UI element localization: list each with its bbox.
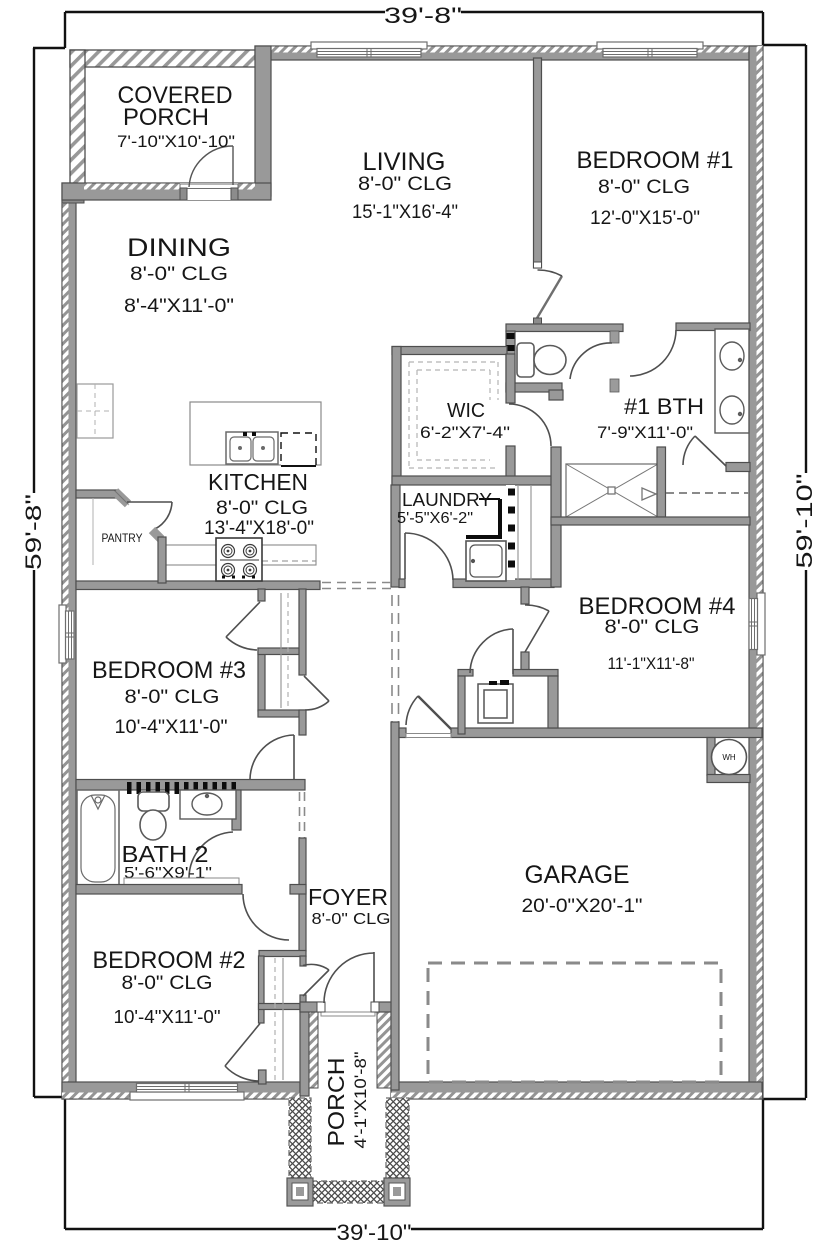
svg-text:LAUNDRY: LAUNDRY: [402, 490, 492, 510]
svg-text:8'-4"X11'-0": 8'-4"X11'-0": [124, 296, 234, 317]
svg-text:WIC: WIC: [447, 400, 485, 422]
svg-text:8'-0" CLG: 8'-0" CLG: [312, 911, 391, 928]
svg-text:BEDROOM #2: BEDROOM #2: [93, 947, 246, 974]
svg-text:BEDROOM #4: BEDROOM #4: [579, 593, 736, 620]
svg-text:BATH 2: BATH 2: [122, 841, 209, 867]
svg-text:10'-4"X11'-0": 10'-4"X11'-0": [114, 1007, 221, 1027]
svg-text:BEDROOM #1: BEDROOM #1: [577, 147, 734, 174]
svg-text:10'-4"X11'-0": 10'-4"X11'-0": [115, 717, 228, 738]
svg-text:KITCHEN: KITCHEN: [208, 469, 308, 495]
svg-text:LIVING: LIVING: [363, 148, 446, 176]
svg-text:12'-0"X15'-0": 12'-0"X15'-0": [590, 208, 700, 229]
svg-text:11'-1"X11'-8": 11'-1"X11'-8": [608, 654, 695, 673]
svg-text:8'-0" CLG: 8'-0" CLG: [358, 174, 452, 195]
svg-text:WH: WH: [722, 753, 736, 762]
svg-text:15'-1"X16'-4": 15'-1"X16'-4": [352, 202, 458, 223]
svg-text:8'-0" CLG: 8'-0" CLG: [130, 264, 228, 285]
svg-text:PANTRY: PANTRY: [102, 531, 143, 545]
svg-text:DINING: DINING: [127, 234, 231, 262]
svg-text:FOYER: FOYER: [308, 884, 388, 910]
svg-text:5'-5"X6'-2": 5'-5"X6'-2": [397, 510, 473, 527]
svg-text:59'-8": 59'-8": [21, 494, 46, 570]
svg-text:8'-0" CLG: 8'-0" CLG: [122, 973, 213, 994]
svg-text:BEDROOM #3: BEDROOM #3: [92, 657, 246, 684]
svg-text:8'-0" CLG: 8'-0" CLG: [125, 687, 220, 708]
svg-text:39'-10": 39'-10": [337, 1220, 412, 1245]
svg-text:8'-0" CLG: 8'-0" CLG: [598, 177, 690, 198]
svg-text:PORCH: PORCH: [323, 1058, 349, 1147]
svg-text:39'-8": 39'-8": [384, 3, 462, 28]
svg-text:#1 BTH: #1 BTH: [624, 394, 704, 419]
svg-text:7'-9"X11'-0": 7'-9"X11'-0": [597, 423, 693, 442]
svg-text:13'-4"X18'-0": 13'-4"X18'-0": [204, 518, 314, 539]
svg-text:7'-10"X10'-10": 7'-10"X10'-10": [117, 132, 235, 151]
svg-text:PORCH: PORCH: [123, 104, 209, 131]
svg-text:20'-0"X20'-1": 20'-0"X20'-1": [522, 896, 643, 917]
svg-text:8'-0" CLG: 8'-0" CLG: [216, 498, 308, 519]
svg-text:59'-10": 59'-10": [792, 474, 817, 569]
svg-text:4'-1"X10'-8": 4'-1"X10'-8": [351, 1052, 370, 1149]
svg-text:GARAGE: GARAGE: [525, 861, 630, 889]
svg-text:8'-0" CLG: 8'-0" CLG: [605, 617, 700, 638]
svg-text:6'-2"X7'-4": 6'-2"X7'-4": [420, 423, 510, 442]
